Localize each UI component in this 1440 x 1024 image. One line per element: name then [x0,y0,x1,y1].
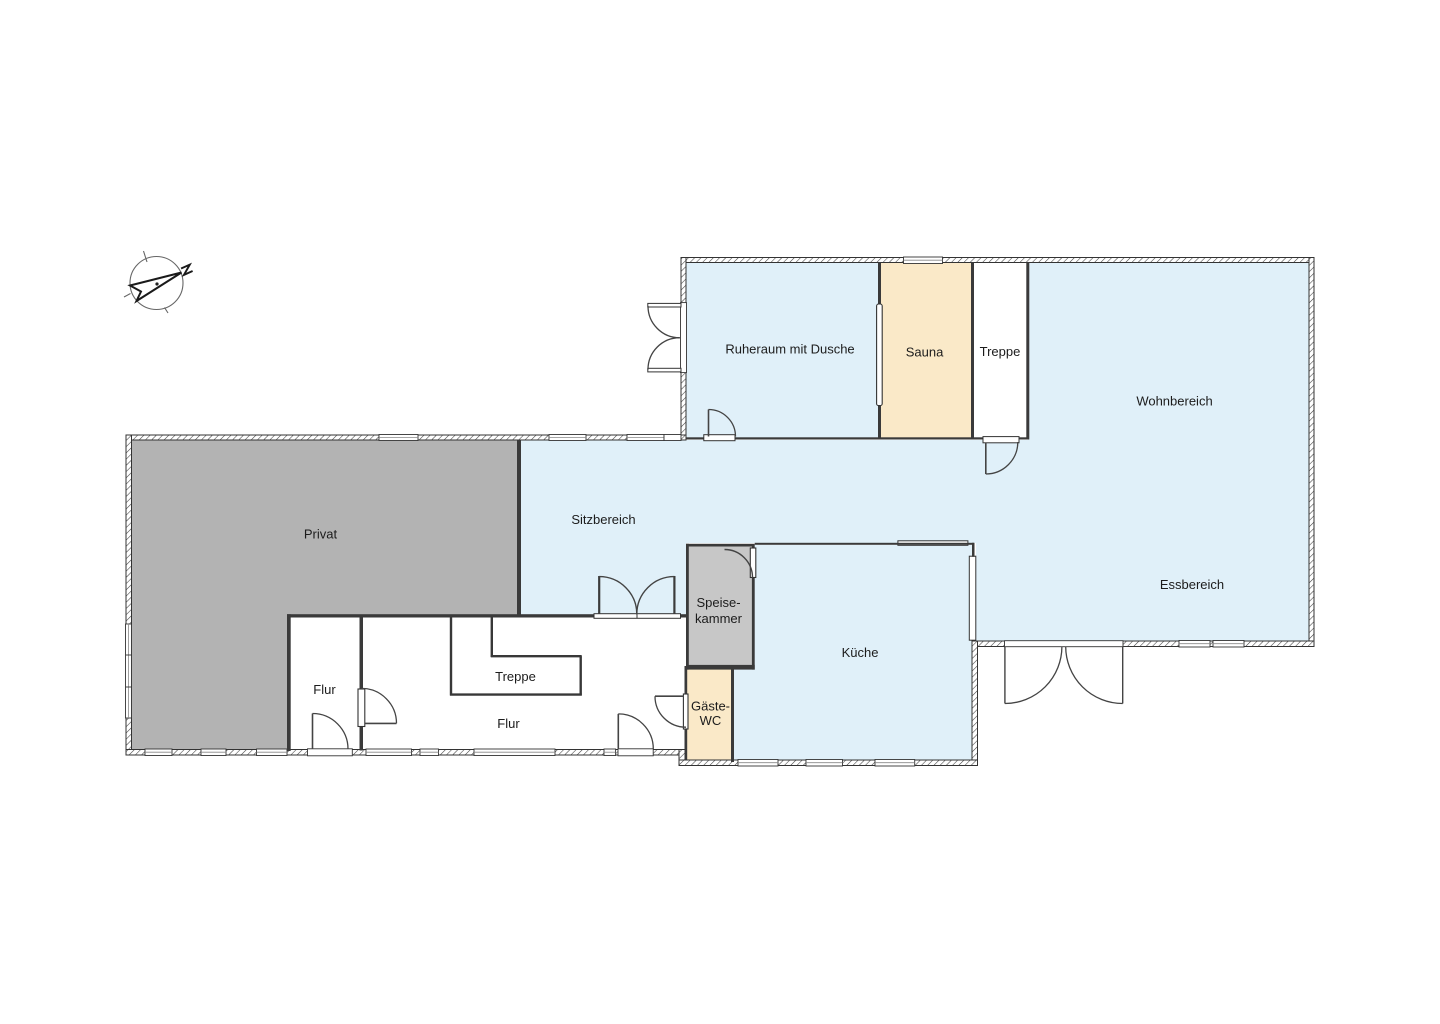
svg-text:Privat: Privat [304,527,338,542]
svg-text:Flur: Flur [497,716,520,731]
svg-text:Speise-: Speise- [696,595,740,610]
svg-text:Ruheraum mit Dusche: Ruheraum mit Dusche [725,342,854,357]
svg-text:Essbereich: Essbereich [1160,577,1224,592]
svg-text:Küche: Küche [842,645,879,660]
svg-text:Sauna: Sauna [906,345,944,360]
svg-text:Treppe: Treppe [980,344,1021,359]
svg-text:WC: WC [700,713,722,728]
svg-text:Treppe: Treppe [495,669,536,684]
svg-text:Sitzbereich: Sitzbereich [571,512,635,527]
svg-text:Flur: Flur [313,682,336,697]
svg-text:kammer: kammer [695,611,743,626]
svg-text:Wohnbereich: Wohnbereich [1136,394,1212,409]
svg-text:Gäste-: Gäste- [691,699,730,714]
